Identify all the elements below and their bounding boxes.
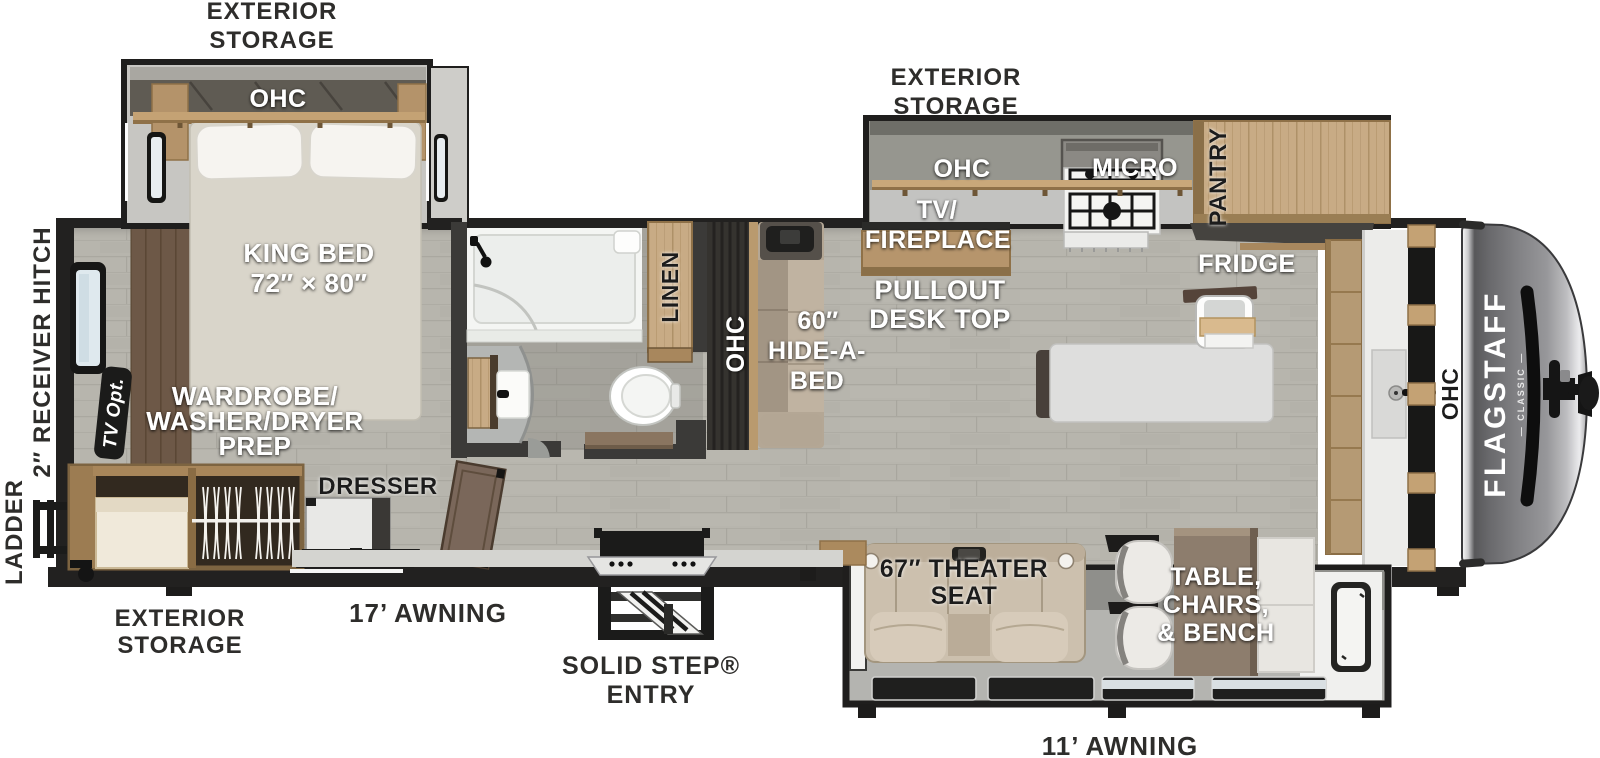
svg-text:FIREPLACE: FIREPLACE [865, 226, 1011, 254]
svg-text:TV/: TV/ [917, 196, 957, 224]
svg-text:FLAGSTAFF: FLAGSTAFF [1479, 290, 1512, 498]
svg-text:DESK TOP: DESK TOP [869, 304, 1011, 334]
svg-text:OHC: OHC [1437, 368, 1463, 421]
svg-text:PREP: PREP [219, 431, 292, 461]
svg-text:FRIDGE: FRIDGE [1198, 250, 1295, 278]
svg-text:OHC: OHC [249, 85, 306, 113]
svg-text:OHC: OHC [933, 155, 990, 183]
svg-text:STORAGE: STORAGE [893, 93, 1018, 120]
svg-text:ENTRY: ENTRY [607, 681, 696, 709]
svg-text:PULLOUT: PULLOUT [875, 275, 1006, 305]
svg-text:72″ × 80″: 72″ × 80″ [251, 268, 368, 298]
svg-text:STORAGE: STORAGE [209, 27, 334, 54]
svg-text:TABLE,: TABLE, [1170, 563, 1261, 591]
svg-text:HIDE-A-: HIDE-A- [768, 337, 866, 365]
svg-text:KING BED: KING BED [243, 238, 374, 268]
svg-text:EXTERIOR: EXTERIOR [891, 64, 1022, 91]
svg-text:& BENCH: & BENCH [1157, 619, 1274, 647]
svg-text:SEAT: SEAT [931, 582, 998, 610]
svg-text:17’ AWNING: 17’ AWNING [349, 598, 507, 628]
svg-text:LADDER: LADDER [1, 479, 28, 585]
svg-text:CHAIRS,: CHAIRS, [1163, 591, 1269, 619]
svg-text:67″ THEATER: 67″ THEATER [880, 555, 1048, 583]
svg-text:BED: BED [790, 367, 844, 395]
svg-text:11’ AWNING: 11’ AWNING [1042, 731, 1198, 758]
svg-text:MICRO: MICRO [1092, 154, 1178, 182]
svg-text:— CLASSIC —: — CLASSIC — [1516, 352, 1526, 437]
svg-text:DRESSER: DRESSER [318, 473, 438, 500]
svg-text:LINEN: LINEN [657, 251, 683, 323]
svg-text:EXTERIOR: EXTERIOR [207, 0, 338, 25]
svg-text:60″: 60″ [797, 307, 838, 335]
svg-text:OHC: OHC [722, 315, 750, 372]
svg-text:SOLID STEP®: SOLID STEP® [562, 652, 740, 680]
svg-text:STORAGE: STORAGE [117, 632, 242, 659]
svg-text:2″ RECEIVER HITCH: 2″ RECEIVER HITCH [29, 226, 56, 477]
svg-text:EXTERIOR: EXTERIOR [115, 605, 246, 632]
svg-text:PANTRY: PANTRY [1205, 128, 1232, 227]
